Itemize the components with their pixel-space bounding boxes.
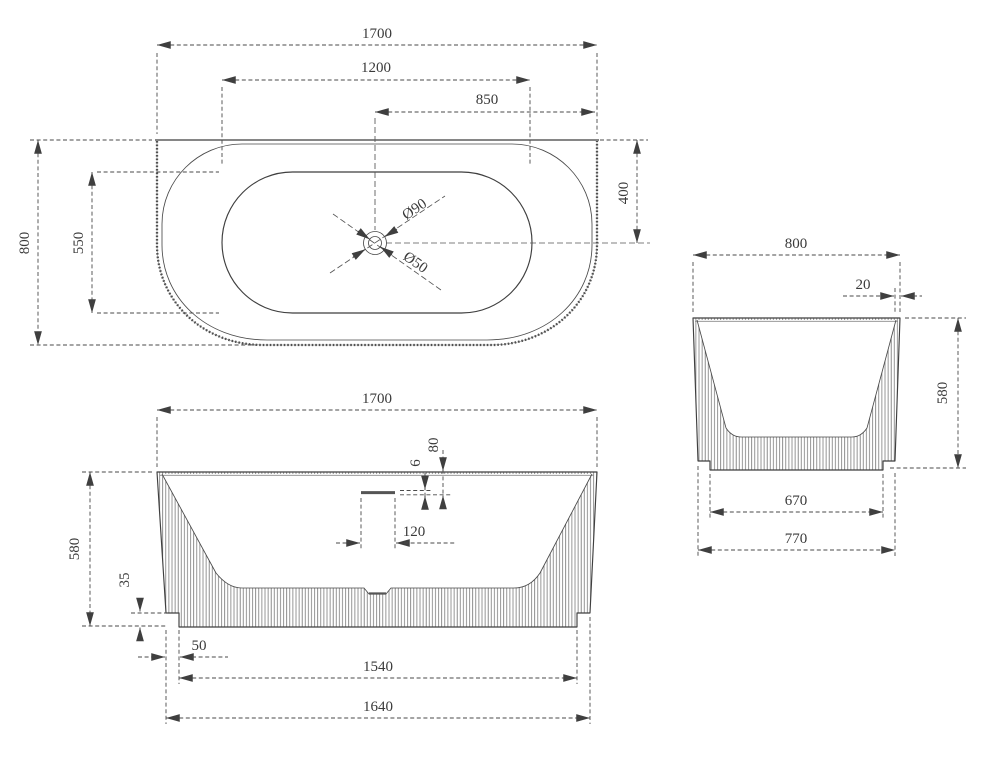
front-view: 1700 6 80 120 580 35 bbox=[67, 391, 597, 724]
dim-front-overflow-slot-height: 6 bbox=[408, 459, 424, 467]
dim-side-rim-thickness: 20 bbox=[856, 277, 871, 293]
dim-front-length: 1700 bbox=[362, 391, 392, 407]
dim-side-base-width: 670 bbox=[785, 493, 808, 509]
drain-dia50-arrow-nw bbox=[358, 231, 370, 239]
dim-top-drain-offset-y: 400 bbox=[616, 182, 632, 205]
drain-dia90-arrow-sw bbox=[353, 249, 365, 257]
dim-front-overflow-width: 120 bbox=[403, 524, 426, 540]
top-view: Ø90 Ø50 1700 1200 850 800 550 400 bbox=[17, 26, 650, 345]
dim-top-drain-offset-x: 850 bbox=[476, 92, 499, 108]
dim-front-base-inset: 50 bbox=[192, 638, 207, 654]
side-view: 800 20 580 670 770 bbox=[693, 236, 966, 556]
dim-drain-waste-dia: Ø50 bbox=[400, 249, 430, 277]
dim-drain-outer-dia: Ø90 bbox=[400, 196, 430, 224]
drain-dia90-arrow-ne bbox=[385, 229, 397, 237]
dim-top-inner-width: 550 bbox=[71, 232, 87, 255]
technical-drawing: Ø90 Ø50 1700 1200 850 800 550 400 bbox=[0, 0, 1000, 763]
dim-side-bottom-width: 770 bbox=[785, 531, 808, 547]
side-view-basin-profile bbox=[697, 320, 896, 437]
dim-front-bottom-length: 1640 bbox=[363, 699, 393, 715]
side-view-shell-hatch bbox=[693, 318, 900, 470]
dim-front-height: 580 bbox=[67, 538, 83, 561]
dim-front-overflow-below-rim: 80 bbox=[426, 438, 442, 453]
dim-side-width: 800 bbox=[785, 236, 808, 252]
dim-front-plinth-height: 35 bbox=[117, 573, 133, 588]
dim-top-inner-length: 1200 bbox=[361, 60, 391, 76]
top-view-basin-opening bbox=[222, 172, 532, 313]
dim-side-height: 580 bbox=[935, 382, 951, 405]
dim-front-base-length: 1540 bbox=[363, 659, 393, 675]
front-view-shell-hatch bbox=[157, 472, 597, 627]
drawing-sheet: Ø90 Ø50 1700 1200 850 800 550 400 bbox=[0, 0, 1000, 763]
drain-dia50-arrow-se bbox=[380, 247, 392, 255]
dim-top-width: 800 bbox=[17, 232, 33, 255]
dim-top-length: 1700 bbox=[362, 26, 392, 42]
